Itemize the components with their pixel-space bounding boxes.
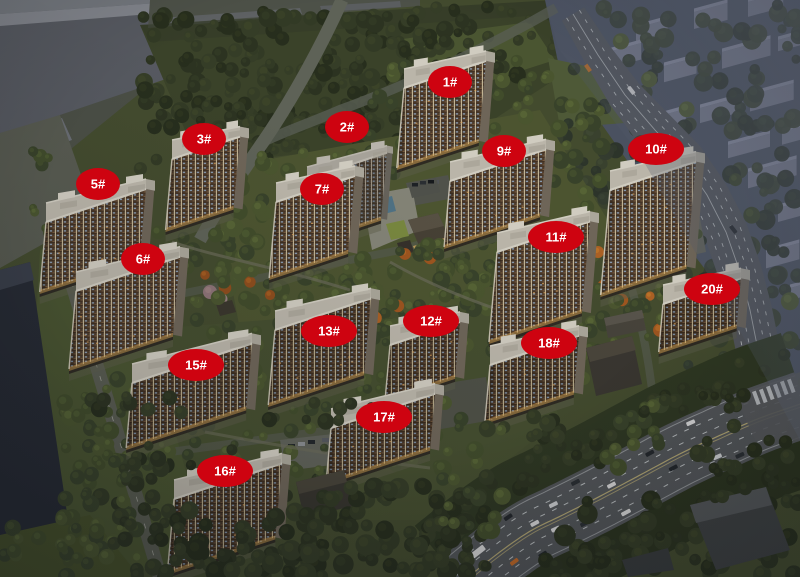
- svg-text:3#: 3#: [197, 132, 212, 147]
- svg-text:7#: 7#: [315, 182, 330, 197]
- svg-text:6#: 6#: [136, 252, 151, 267]
- svg-text:20#: 20#: [701, 282, 723, 297]
- svg-text:16#: 16#: [214, 464, 236, 479]
- svg-text:1#: 1#: [443, 75, 458, 90]
- svg-text:12#: 12#: [420, 314, 442, 329]
- svg-text:13#: 13#: [318, 324, 340, 339]
- svg-text:18#: 18#: [538, 336, 560, 351]
- svg-text:9#: 9#: [497, 144, 512, 159]
- svg-text:5#: 5#: [91, 177, 106, 192]
- svg-text:17#: 17#: [373, 410, 395, 425]
- svg-text:10#: 10#: [645, 142, 667, 157]
- svg-text:2#: 2#: [340, 120, 355, 135]
- svg-text:15#: 15#: [185, 358, 207, 373]
- svg-text:11#: 11#: [546, 230, 568, 245]
